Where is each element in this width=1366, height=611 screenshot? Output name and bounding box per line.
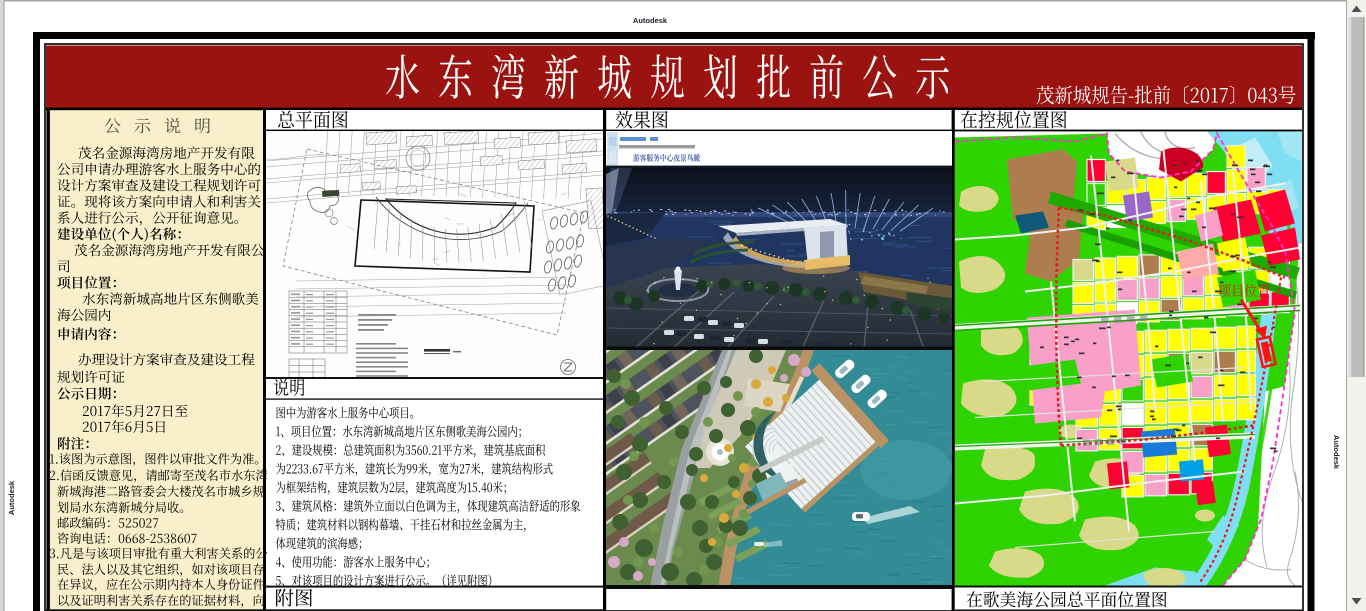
svg-text:Autodesk: Autodesk: [1332, 435, 1341, 470]
svg-text:Autodesk: Autodesk: [633, 16, 668, 25]
svg-text:Autodesk: Autodesk: [7, 480, 16, 515]
